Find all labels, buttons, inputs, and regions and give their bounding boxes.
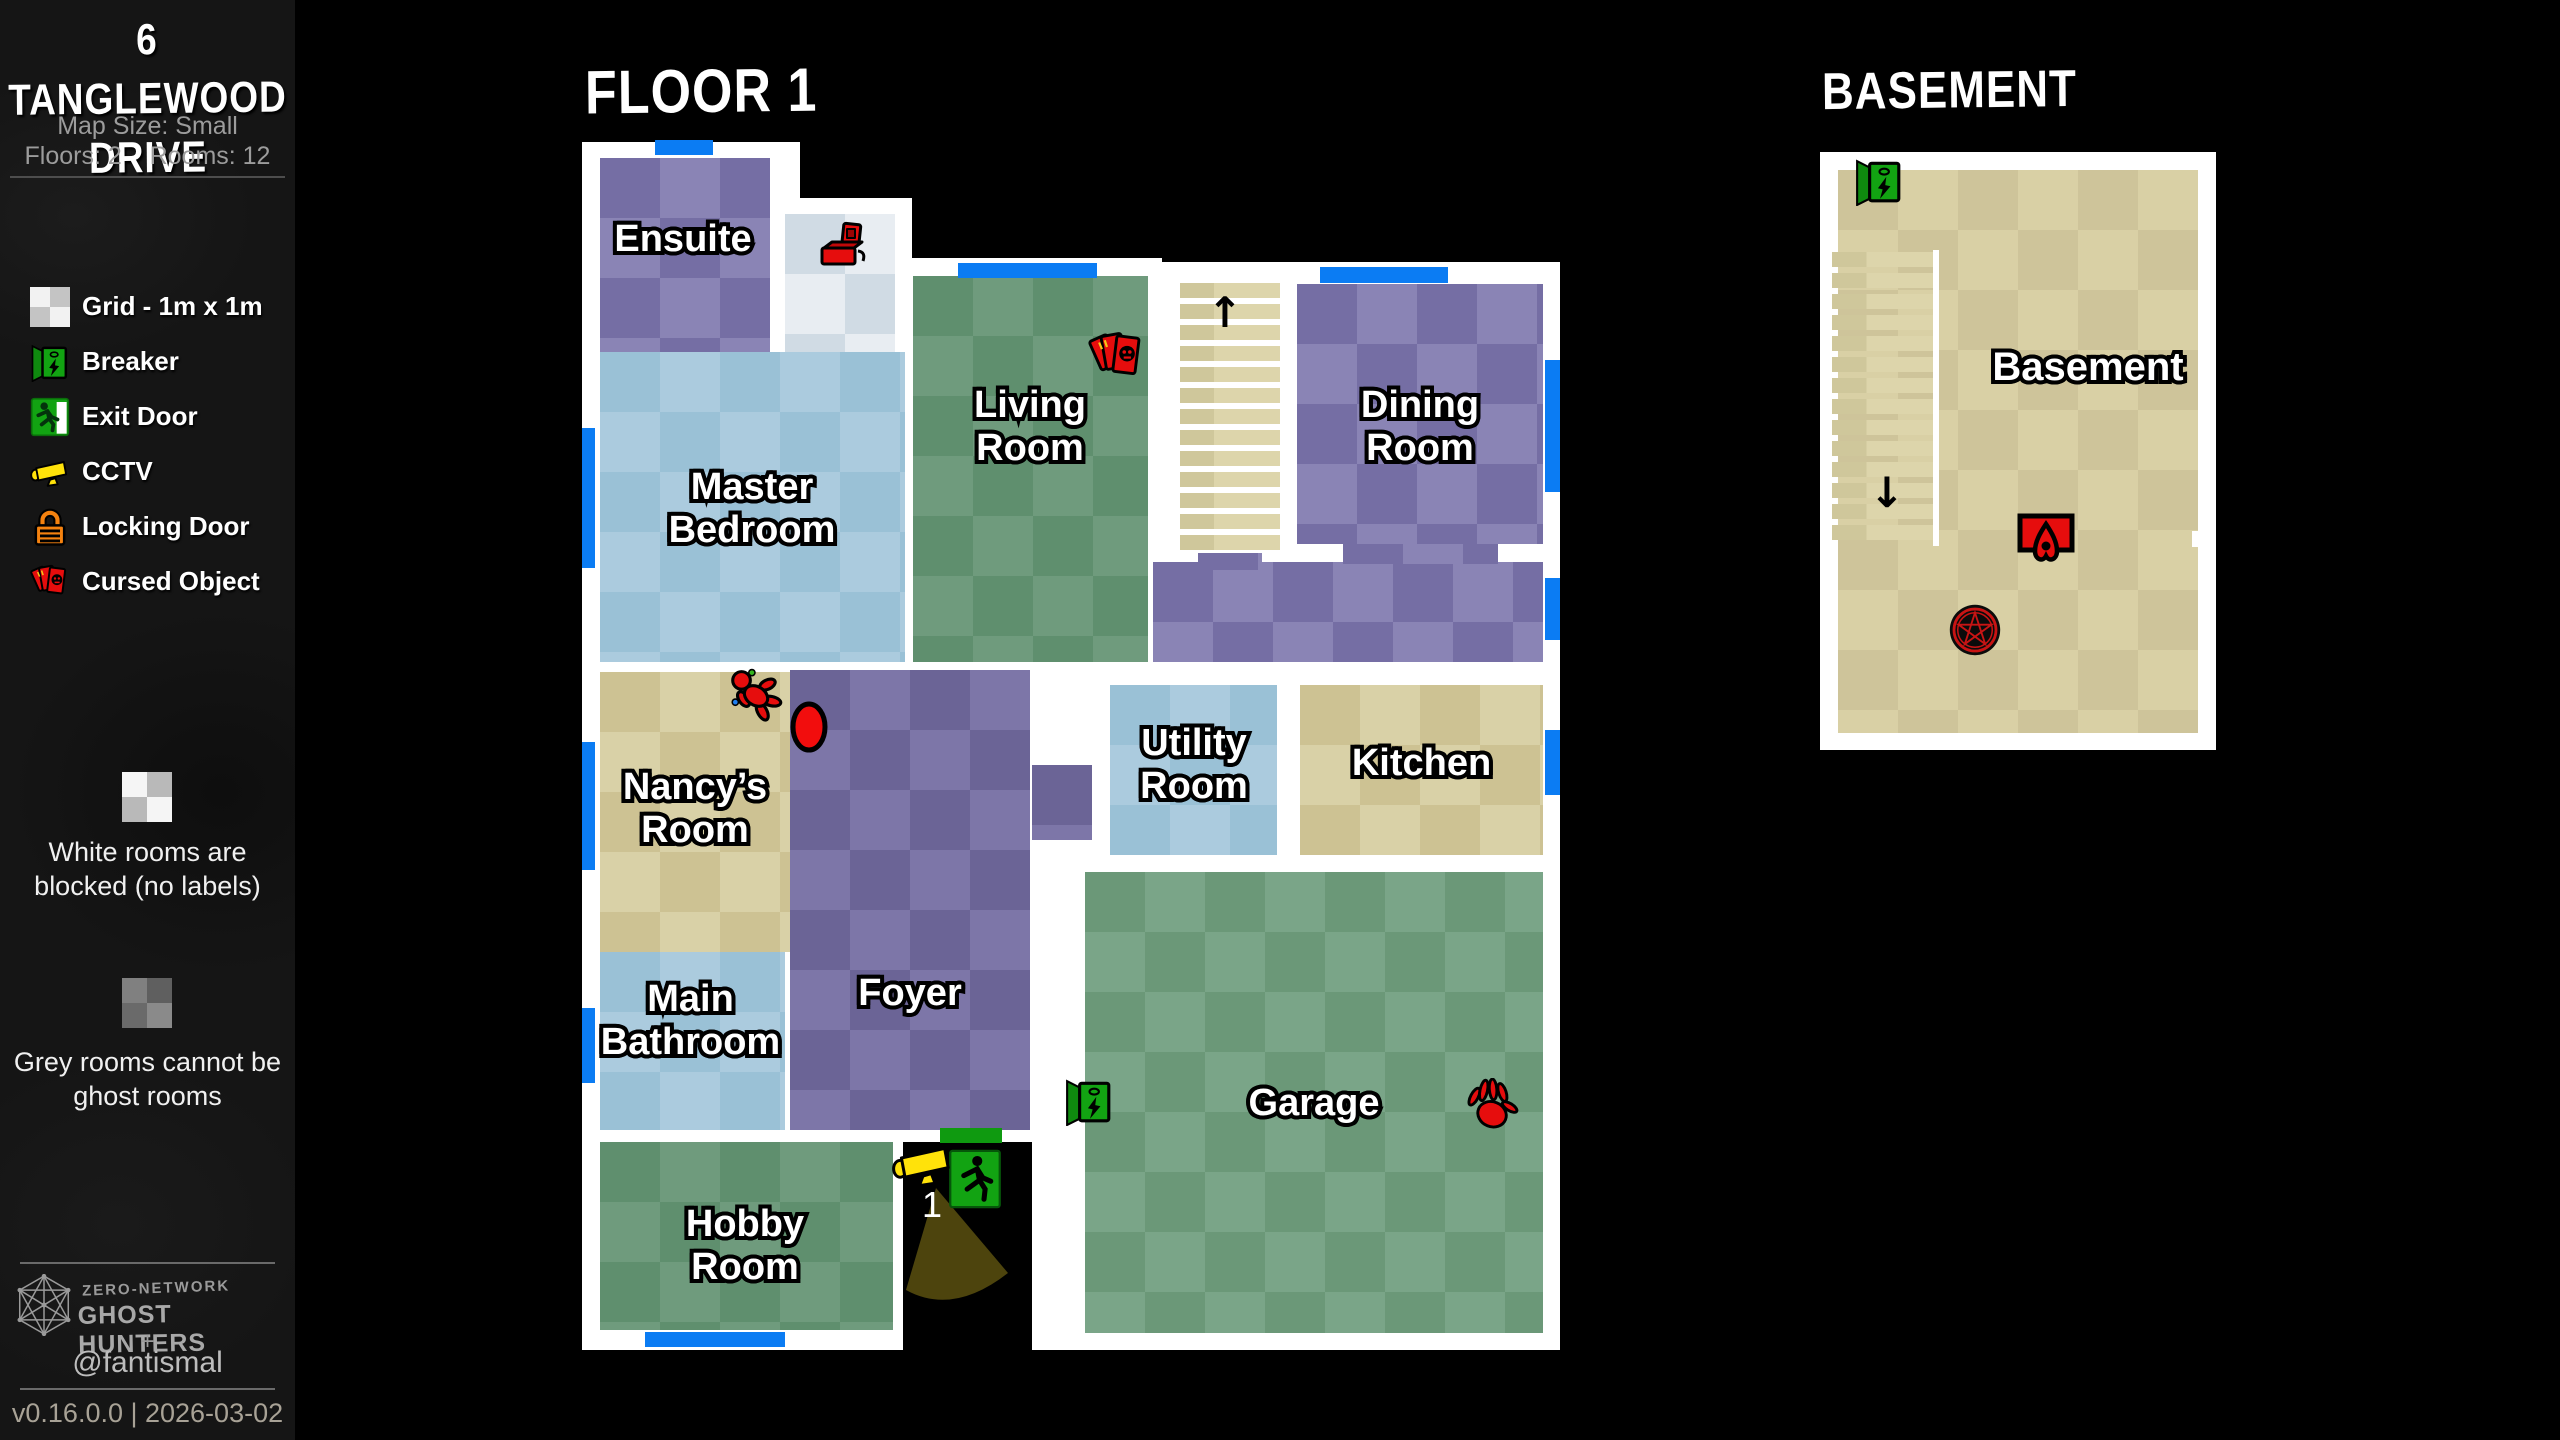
room-label-basement: Basement [1959, 345, 2217, 391]
window [958, 263, 1097, 278]
room-label-master: Master Bedroom [632, 466, 872, 553]
room-label-living: Living Room [940, 384, 1120, 471]
room-label-dining: Dining Room [1322, 384, 1518, 471]
window [1545, 360, 1560, 492]
hallway [1153, 562, 1543, 662]
ouija-planchette-icon [2016, 512, 2076, 576]
room-label-foyer: Foyer [790, 972, 1030, 1015]
stairs-up-arrow: ↑ [1200, 288, 1250, 337]
door-opening [1198, 553, 1262, 570]
white-rooms-swatch [122, 772, 172, 822]
legend-label: Cursed Object [82, 566, 260, 597]
rooms-count: Rooms: 12 [150, 142, 271, 170]
legend-item-locking-door: Locking Door [0, 507, 295, 547]
voodoo-doll-icon [726, 668, 784, 726]
room-label-kitchen: Kitchen [1300, 742, 1543, 785]
window [655, 140, 713, 155]
divider [20, 1388, 275, 1390]
basement-title: BASEMENT [1822, 60, 2077, 122]
footer-handle: @fantismal [0, 1346, 295, 1380]
stair-rail [1933, 250, 1939, 546]
zero-network-logo [16, 1274, 72, 1336]
floors-rooms-text: Floors: 2 Rooms: 12 [0, 142, 295, 171]
grey-rooms-note: Grey rooms cannot be ghost rooms [0, 1046, 295, 1114]
divider [10, 176, 285, 178]
cctv-icon [30, 452, 70, 492]
room-label-bathroom: Main Bathroom [588, 978, 793, 1065]
summoning-circle-icon [1947, 602, 2003, 658]
legend-label: CCTV [82, 456, 153, 487]
room-label-garage: Garage [1085, 1082, 1543, 1125]
legend-item-breaker: Breaker [0, 342, 295, 382]
cursed-object-icon [30, 562, 70, 602]
haunted-mirror-icon [789, 700, 829, 754]
legend-label: Breaker [82, 346, 179, 377]
room-label-nancy: Nancy’s Room [610, 766, 780, 853]
legend-label: Locking Door [82, 511, 250, 542]
floors-count: Floors: 2 [25, 142, 122, 170]
locking-door-icon [30, 507, 70, 547]
breaker-icon [1854, 156, 1904, 206]
divider [20, 1262, 275, 1264]
grid-icon [30, 287, 70, 327]
legend-item-exit-door: Exit Door [0, 397, 295, 437]
legend-label: Grid - 1m x 1m [82, 291, 263, 322]
floor1-title: FLOOR 1 [585, 55, 818, 129]
legend-label: Exit Door [82, 401, 198, 432]
grey-rooms-swatch [122, 978, 172, 1028]
tarot-cards-icon [1088, 328, 1146, 386]
exit-door-icon [30, 397, 70, 437]
cctv-number: 1 [917, 1184, 947, 1226]
breaker-icon [30, 342, 70, 382]
stairs-down-arrow: ↓ [1862, 468, 1912, 517]
legend-item-cursed-object: Cursed Object [0, 562, 295, 602]
version-text: v0.16.0.0 | 2026-03-02 [0, 1398, 295, 1429]
room-label-hobby: Hobby Room [645, 1203, 845, 1290]
window [645, 1332, 785, 1347]
room-label-utility: Utility Room [1118, 722, 1270, 809]
door-opening [2192, 531, 2216, 547]
window [582, 428, 595, 568]
window [582, 742, 595, 870]
legend-item-cctv: CCTV [0, 452, 295, 492]
white-rooms-note: White rooms are blocked (no labels) [0, 836, 295, 904]
cctv-icon [891, 1140, 955, 1188]
door-opening [1032, 765, 1092, 840]
map-size-text: Map Size: Small [0, 112, 295, 141]
sidebar: 6 TANGLEWOOD DRIVE Map Size: Small Floor… [0, 0, 295, 1440]
exit-door-icon [948, 1148, 1002, 1210]
legend-item-grid: Grid - 1m x 1m [0, 287, 295, 327]
music-box-icon [816, 220, 868, 274]
footer-network: ZERO-NETWORK [82, 1277, 231, 1299]
window [1545, 578, 1560, 640]
room-label-ensuite: Ensuite [598, 218, 768, 261]
window [1320, 267, 1448, 283]
window [1545, 730, 1560, 795]
door-opening [1343, 544, 1498, 564]
